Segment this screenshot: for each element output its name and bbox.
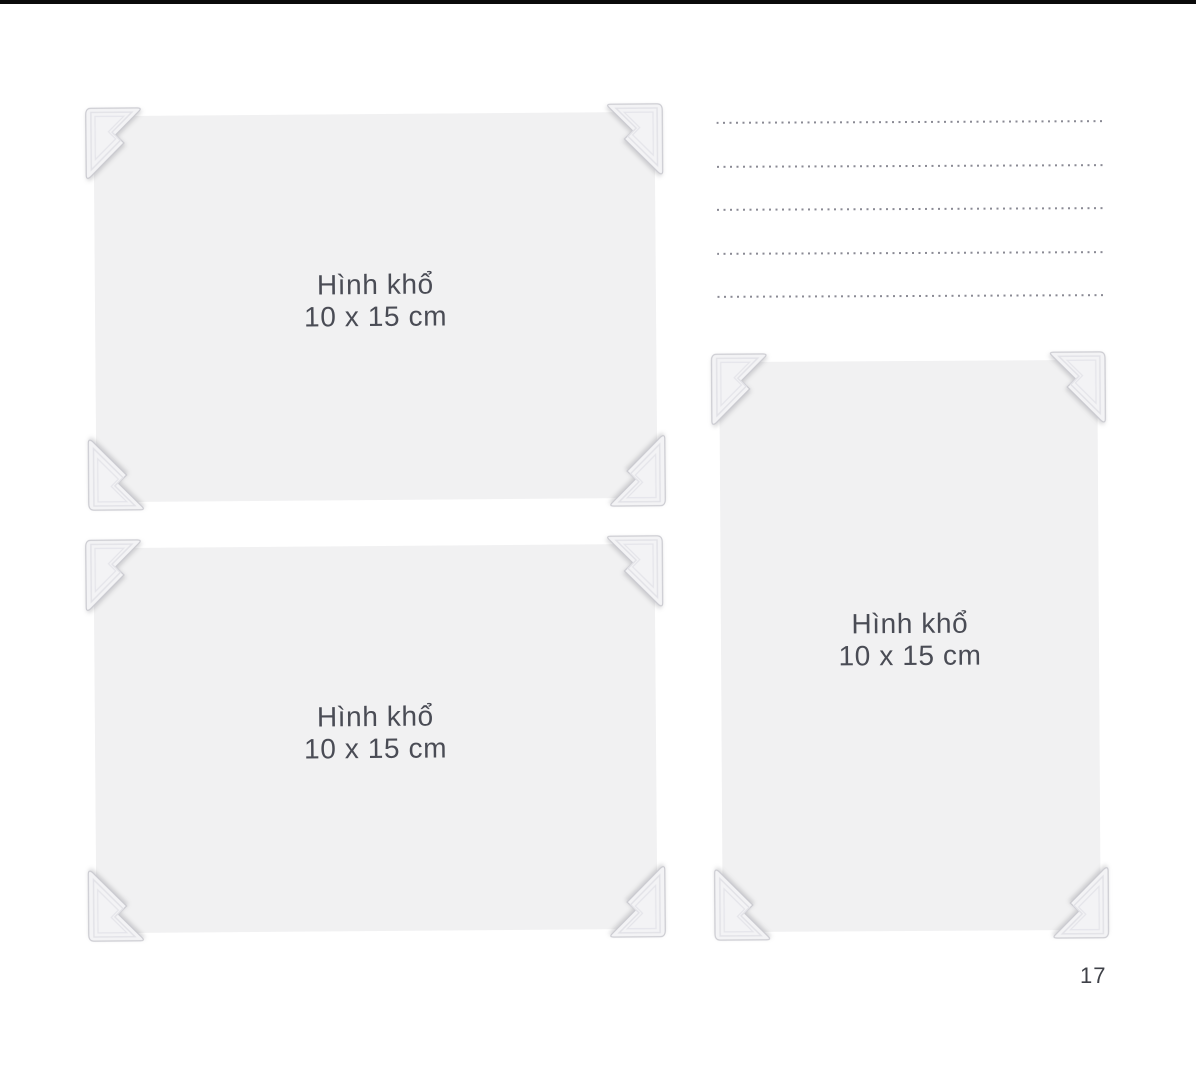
corner-mount-icon [81,106,148,185]
photo-corner-br [603,430,670,509]
photo-corner-br [1046,862,1112,940]
photo-placeholder-3[interactable]: Hình khổ 10 x 15 cm [719,360,1100,932]
notes-area [717,120,1105,300]
photo-corner-bl [84,865,151,944]
dotted-line [717,164,1104,168]
photo-corner-bl [84,434,151,513]
page-number: 17 [1080,963,1106,989]
dotted-line [717,120,1104,124]
photo-corner-tr [600,102,667,181]
corner-mount-icon [1046,862,1112,940]
album-page: Hình khổ 10 x 15 cm Hình khổ 10 x 15 cm … [0,0,1196,1080]
photo-frame-2: Hình khổ 10 x 15 cm [93,544,657,933]
photo-corner-bl [710,864,776,942]
scan-edge-bar [0,0,1196,4]
photo-size-label-line2: 10 x 15 cm [304,732,447,765]
corner-mount-icon [600,534,667,613]
corner-mount-icon [84,865,151,944]
photo-corner-tl [81,538,148,617]
photo-corner-tr [1043,350,1109,428]
photo-size-label: Hình khổ 10 x 15 cm [304,268,447,333]
corner-mount-icon [600,102,667,181]
dotted-line [717,294,1104,298]
photo-frame-1: Hình khổ 10 x 15 cm [93,112,657,502]
photo-size-label-line2: 10 x 15 cm [304,300,447,333]
photo-size-label-line1: Hình khổ [838,608,981,641]
photo-placeholder-1[interactable]: Hình khổ 10 x 15 cm [93,112,657,502]
corner-mount-icon [603,430,670,509]
corner-mount-icon [81,538,148,617]
corner-mount-icon [84,434,151,513]
corner-mount-icon [707,352,773,430]
photo-size-label-line2: 10 x 15 cm [838,640,981,673]
dotted-line [717,251,1104,255]
corner-mount-icon [603,861,670,940]
photo-size-label: Hình khổ 10 x 15 cm [838,608,981,673]
corner-mount-icon [710,864,776,942]
photo-corner-br [603,861,670,940]
photo-size-label-line1: Hình khổ [304,268,447,301]
photo-frame-3: Hình khổ 10 x 15 cm [719,360,1100,932]
photo-size-label: Hình khổ 10 x 15 cm [304,700,447,765]
photo-placeholder-2[interactable]: Hình khổ 10 x 15 cm [93,544,657,933]
photo-corner-tr [600,534,667,613]
dotted-line [717,207,1104,211]
photo-corner-tl [81,106,148,185]
photo-corner-tl [707,352,773,430]
corner-mount-icon [1043,350,1109,428]
photo-size-label-line1: Hình khổ [304,700,447,733]
